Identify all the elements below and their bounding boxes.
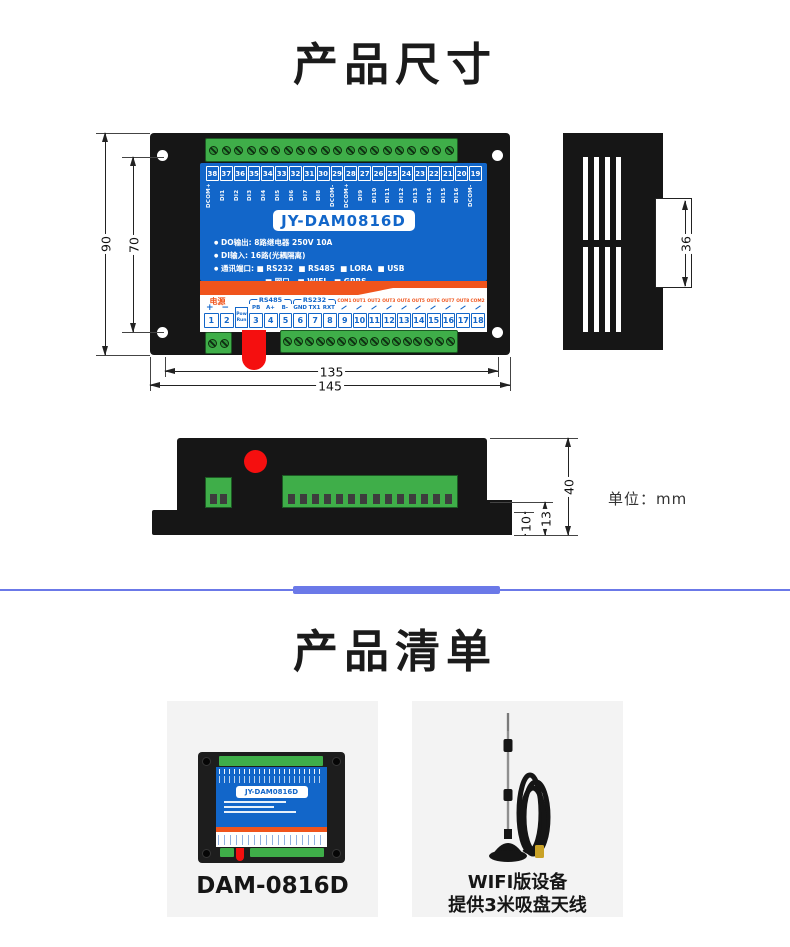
dim-value: 10 bbox=[518, 514, 533, 534]
terminal-number: 17 bbox=[456, 313, 470, 328]
terminal-number: 14 bbox=[412, 313, 426, 328]
terminal-number: 9 bbox=[338, 313, 352, 328]
relay-switch-icon bbox=[356, 305, 361, 309]
product-card-antenna: WIFI版设备 提供3米吸盘天线 bbox=[412, 701, 623, 917]
arrow-left-icon bbox=[149, 382, 160, 388]
rs232-bracket: RS232 bbox=[293, 299, 336, 304]
terminal-number: 12 bbox=[382, 313, 396, 328]
terminal-label: DCOM+ bbox=[206, 183, 220, 208]
terminal-screw bbox=[420, 146, 429, 155]
terminal-label: DI4 bbox=[261, 183, 275, 208]
dim-value: 70 bbox=[126, 235, 141, 255]
connector-pin bbox=[445, 494, 452, 504]
pin-label: PB bbox=[249, 305, 263, 311]
arrow-up-icon bbox=[130, 156, 136, 166]
section-divider-bar bbox=[293, 586, 500, 594]
terminal-screw bbox=[222, 146, 231, 155]
mini-label-row bbox=[219, 776, 324, 783]
vent-slots-top bbox=[583, 157, 621, 240]
output-label: OUT7 bbox=[441, 299, 456, 304]
arrow-down-icon bbox=[682, 277, 688, 287]
extension-line bbox=[165, 357, 166, 377]
terminal-number: 26 bbox=[372, 166, 385, 181]
vent-slot bbox=[583, 247, 588, 332]
connector-pin bbox=[348, 494, 355, 504]
terminal-label: DCOM- bbox=[468, 183, 482, 208]
terminal-number: 7 bbox=[308, 313, 322, 328]
side-view-drawing bbox=[563, 133, 663, 350]
terminal-screw bbox=[424, 337, 433, 346]
terminal-label: DI14 bbox=[427, 183, 441, 208]
terminal-screw bbox=[370, 146, 379, 155]
terminal-label: DI9 bbox=[358, 183, 372, 208]
vent-slot bbox=[594, 247, 599, 332]
terminal-screw bbox=[321, 146, 330, 155]
terminal-screw bbox=[392, 337, 401, 346]
rs485-bracket: RS485 bbox=[249, 299, 292, 304]
relay-symbols bbox=[337, 307, 485, 308]
arrow-right-icon bbox=[488, 368, 499, 374]
relay-switch-icon bbox=[342, 305, 347, 309]
rs485-pins: PBA+B- bbox=[249, 305, 292, 311]
mini-antenna-connector bbox=[236, 848, 244, 861]
terminal-screw bbox=[259, 146, 268, 155]
vent-slot bbox=[594, 157, 599, 240]
dim-profile-13: 13 bbox=[545, 502, 546, 535]
terminal-label: DI6 bbox=[289, 183, 303, 208]
terminal-screw bbox=[220, 339, 229, 348]
extension-line bbox=[122, 157, 164, 158]
terminal-number: 29 bbox=[331, 166, 344, 181]
extension-line bbox=[122, 332, 164, 333]
terminal-screw bbox=[283, 337, 292, 346]
dim-value: 36 bbox=[678, 234, 693, 254]
unit-note: 单位：mm bbox=[608, 488, 687, 509]
plus-sign: + bbox=[206, 304, 214, 312]
profile-power-connector bbox=[205, 477, 232, 508]
terminal-number: 11 bbox=[368, 313, 382, 328]
front-view-drawing: 3837363534333231302928272625242322212019… bbox=[150, 133, 510, 355]
arrow-down-icon bbox=[102, 346, 108, 356]
dim-profile-10: 10 bbox=[525, 512, 526, 535]
terminal-screw bbox=[234, 146, 243, 155]
screw-icon bbox=[202, 757, 211, 766]
terminal-number: 1 bbox=[204, 313, 219, 328]
device-photo: JY-DAM0816D bbox=[198, 752, 345, 863]
terminal-screw bbox=[432, 146, 441, 155]
terminal-screw bbox=[446, 337, 455, 346]
section-title-dimensions: 产品尺寸 bbox=[0, 28, 790, 93]
arrow-up-icon bbox=[682, 200, 688, 210]
dim-height-90: 90 bbox=[105, 133, 106, 355]
arrow-left-icon bbox=[164, 368, 175, 374]
pin-label: TX1 bbox=[307, 305, 321, 311]
connector-pin bbox=[409, 494, 416, 504]
terminal-number: 21 bbox=[441, 166, 454, 181]
vent-slot bbox=[605, 247, 610, 332]
dim-width-145: 145 bbox=[150, 385, 510, 386]
terminal-number: 2 bbox=[220, 313, 235, 328]
terminal-label: DI10 bbox=[372, 183, 386, 208]
mini-spec-line bbox=[224, 811, 296, 813]
terminal-number: 22 bbox=[428, 166, 441, 181]
terminal-screw bbox=[358, 146, 367, 155]
output-label: OUT4 bbox=[396, 299, 411, 304]
connector-pin bbox=[288, 494, 295, 504]
output-label: COM1 bbox=[337, 299, 352, 304]
mini-label-panel: JY-DAM0816D bbox=[216, 767, 327, 827]
terminal-screw bbox=[316, 337, 325, 346]
terminal-label: DI16 bbox=[454, 183, 468, 208]
connector-pin bbox=[324, 494, 331, 504]
minus-sign: − bbox=[221, 304, 229, 312]
connector-pin bbox=[385, 494, 392, 504]
mounting-hole bbox=[492, 150, 503, 161]
mounting-hole bbox=[157, 150, 168, 161]
io-terminals: 3456789101112131415161718 bbox=[249, 313, 485, 328]
di-terminal-labels: DCOM+DI1DI2DI3DI4DI5DI6DI7DI8DCOM-DCOM+D… bbox=[206, 183, 482, 208]
relay-switch-icon bbox=[401, 305, 406, 309]
terminal-number: 4 bbox=[264, 313, 278, 328]
product-card-dam0816d: JY-DAM0816D DAM-0816D bbox=[167, 701, 378, 917]
terminal-screw bbox=[435, 337, 444, 346]
device-label-panel: 3837363534333231302928272625242322212019… bbox=[200, 163, 487, 281]
terminal-number: 31 bbox=[303, 166, 316, 181]
terminal-number: 10 bbox=[353, 313, 367, 328]
antenna-connector bbox=[242, 330, 266, 370]
orange-stripe bbox=[200, 281, 487, 296]
antenna-connector-top bbox=[244, 450, 267, 473]
relay-switch-icon bbox=[445, 305, 450, 309]
terminal-number: 6 bbox=[293, 313, 307, 328]
terminal-number: 16 bbox=[442, 313, 456, 328]
spec-text: DO输出: 8路继电器 250V 10A bbox=[221, 237, 332, 248]
terminal-number: 8 bbox=[323, 313, 337, 328]
bullet-icon: ● bbox=[214, 266, 221, 272]
terminal-screw bbox=[308, 146, 317, 155]
terminal-label: DI11 bbox=[385, 183, 399, 208]
arrow-up-icon bbox=[565, 437, 571, 447]
terminal-label: DI5 bbox=[275, 183, 289, 208]
connector-pin bbox=[300, 494, 307, 504]
run-text: Run bbox=[237, 318, 247, 323]
arrow-down-icon bbox=[130, 323, 136, 333]
terminal-label: DI15 bbox=[441, 183, 455, 208]
connector-pin bbox=[312, 494, 319, 504]
product-spec-page: 产品尺寸 38373635343332313029282726252423222… bbox=[0, 0, 790, 947]
terminal-number: 38 bbox=[206, 166, 219, 181]
connector-pin bbox=[421, 494, 428, 504]
power-terminals: 12 bbox=[204, 313, 234, 328]
terminal-number: 3 bbox=[249, 313, 263, 328]
screw-icon bbox=[202, 849, 211, 858]
terminal-screw bbox=[296, 146, 305, 155]
output-label: OUT5 bbox=[411, 299, 426, 304]
terminal-number: 15 bbox=[427, 313, 441, 328]
mini-spec-line bbox=[224, 801, 286, 803]
terminal-label: DCOM- bbox=[330, 183, 344, 208]
terminal-number: 13 bbox=[397, 313, 411, 328]
vent-slots-bottom bbox=[583, 247, 621, 332]
mounting-hole bbox=[492, 327, 503, 338]
mini-power-block bbox=[220, 848, 234, 857]
bullet-icon: ● bbox=[214, 253, 221, 259]
spec-text: DI输入: 16路(光耦隔离) bbox=[221, 250, 305, 261]
dim-value: 135 bbox=[318, 364, 346, 379]
connector-pin bbox=[373, 494, 380, 504]
rs485-label: RS485 bbox=[257, 296, 284, 304]
mini-terminal-row bbox=[218, 835, 325, 845]
relay-switch-icon bbox=[416, 305, 421, 309]
terminal-screw bbox=[326, 337, 335, 346]
vent-slot bbox=[583, 157, 588, 240]
relay-switch-icon bbox=[371, 305, 376, 309]
output-label: COM2 bbox=[470, 299, 485, 304]
terminal-number: 35 bbox=[248, 166, 261, 181]
output-label: OUT8 bbox=[455, 299, 470, 304]
terminal-number: 37 bbox=[220, 166, 233, 181]
terminal-number: 25 bbox=[386, 166, 399, 181]
terminal-number: 24 bbox=[400, 166, 413, 181]
arrow-right-icon bbox=[500, 382, 511, 388]
product-subtitle: 提供3米吸盘天线 bbox=[412, 891, 623, 917]
spec-text: 通讯端口: ■ RS232 ■ RS485 ■ LORA ■ USB bbox=[221, 263, 404, 274]
terminal-number: 27 bbox=[358, 166, 371, 181]
di-terminal-numbers: 3837363534333231302928272625242322212019 bbox=[206, 166, 482, 181]
terminal-screw bbox=[247, 146, 256, 155]
terminal-screw bbox=[284, 146, 293, 155]
terminal-screw bbox=[346, 146, 355, 155]
terminal-screw bbox=[208, 339, 217, 348]
vent-slot bbox=[605, 157, 610, 240]
terminal-label: DI8 bbox=[316, 183, 330, 208]
pin-label: B- bbox=[278, 305, 292, 311]
product-name: DAM-0816D bbox=[167, 873, 378, 899]
terminal-screw bbox=[445, 146, 454, 155]
spec-line: ● DI输入: 16路(光耦隔离) bbox=[214, 249, 487, 262]
output-terminal-block bbox=[280, 330, 458, 353]
connector-pin bbox=[220, 494, 227, 504]
connector-pin bbox=[210, 494, 217, 504]
dim-value: 90 bbox=[98, 234, 113, 254]
terminal-label: DI1 bbox=[220, 183, 234, 208]
mini-output-block bbox=[250, 848, 324, 857]
relay-switch-icon bbox=[460, 305, 465, 309]
spec-line: ● 通讯端口: ■ RS232 ■ RS485 ■ LORA ■ USB bbox=[214, 262, 487, 275]
mini-model-badge: JY-DAM0816D bbox=[236, 786, 308, 798]
profile-io-connector bbox=[282, 475, 458, 508]
dim-value: 13 bbox=[538, 509, 553, 529]
terminal-screw bbox=[337, 337, 346, 346]
rs232-pins: GNDTX1RXT bbox=[293, 305, 336, 311]
terminal-number: 18 bbox=[471, 313, 485, 328]
mini-top-terminals bbox=[219, 756, 323, 766]
bottom-view-drawing bbox=[152, 438, 512, 535]
rs232-label: RS232 bbox=[301, 296, 328, 304]
pin-label: RXT bbox=[322, 305, 336, 311]
terminal-number: 28 bbox=[344, 166, 357, 181]
bullet-icon: ● bbox=[214, 240, 221, 246]
terminal-number: 32 bbox=[289, 166, 302, 181]
relay-output-labels: COM1OUT1OUT2OUT3OUT4OUT5OUT6OUT7OUT8COM2 bbox=[337, 299, 485, 304]
terminal-screw bbox=[395, 146, 404, 155]
terminal-label: DI2 bbox=[234, 183, 248, 208]
extension-line bbox=[498, 357, 499, 377]
relay-switch-icon bbox=[475, 305, 480, 309]
relay-switch-icon bbox=[430, 305, 435, 309]
terminal-number: 19 bbox=[469, 166, 482, 181]
terminal-screw bbox=[294, 337, 303, 346]
terminal-screw bbox=[403, 337, 412, 346]
bottom-terminal-strip: 电源 + − RS485 PBA+B- RS232 GNDTX1RXT COM1… bbox=[200, 296, 487, 332]
terminal-number: 36 bbox=[234, 166, 247, 181]
terminal-number: 20 bbox=[455, 166, 468, 181]
power-terminal-block bbox=[205, 332, 232, 354]
terminal-screw bbox=[407, 146, 416, 155]
terminal-screw bbox=[333, 146, 342, 155]
connector-pin bbox=[433, 494, 440, 504]
terminal-label: DCOM+ bbox=[344, 183, 358, 208]
pow-run-indicator: Pow Run bbox=[235, 307, 248, 328]
terminal-screw bbox=[383, 146, 392, 155]
output-label: OUT3 bbox=[381, 299, 396, 304]
terminal-number: 23 bbox=[414, 166, 427, 181]
pin-label: A+ bbox=[263, 305, 277, 311]
dim-profile-40: 40 bbox=[568, 438, 569, 535]
spec-line: ● DO输出: 8路继电器 250V 10A bbox=[214, 236, 487, 249]
terminal-number: 33 bbox=[275, 166, 288, 181]
terminal-label: DI3 bbox=[247, 183, 261, 208]
terminal-label: DI13 bbox=[413, 183, 427, 208]
connector-pin bbox=[336, 494, 343, 504]
vent-slot bbox=[616, 157, 621, 240]
output-label: OUT1 bbox=[352, 299, 367, 304]
terminal-screw bbox=[413, 337, 422, 346]
arrow-down-icon bbox=[565, 526, 571, 536]
connector-pin bbox=[360, 494, 367, 504]
section-title-list: 产品清单 bbox=[0, 615, 790, 680]
profile-base bbox=[152, 510, 512, 535]
terminal-screw bbox=[381, 337, 390, 346]
mini-number-row bbox=[219, 769, 324, 774]
dim-width-135: 135 bbox=[165, 371, 498, 372]
power-polarity: + − bbox=[202, 304, 233, 312]
terminal-label: DI12 bbox=[399, 183, 413, 208]
dim-rail-36: 36 bbox=[685, 201, 686, 286]
pin-label: GND bbox=[293, 305, 307, 311]
terminal-number: 34 bbox=[261, 166, 274, 181]
dim-height-70: 70 bbox=[133, 157, 134, 332]
screw-icon bbox=[332, 849, 341, 858]
arrow-up-icon bbox=[102, 132, 108, 142]
terminal-screw bbox=[209, 146, 218, 155]
relay-switch-icon bbox=[386, 305, 391, 309]
terminal-screw bbox=[370, 337, 379, 346]
output-label: OUT2 bbox=[367, 299, 382, 304]
terminal-label: DI7 bbox=[303, 183, 317, 208]
mini-spec-line bbox=[224, 806, 274, 808]
model-name-badge: JY-DAM0816D bbox=[273, 210, 415, 231]
output-label: OUT6 bbox=[426, 299, 441, 304]
vent-slot bbox=[616, 247, 621, 332]
terminal-screw bbox=[271, 146, 280, 155]
screw-icon bbox=[332, 757, 341, 766]
terminal-screw bbox=[359, 337, 368, 346]
terminal-screw bbox=[348, 337, 357, 346]
bottom-terminal-numbers: 12 Pow Run 3456789101112131415161718 bbox=[204, 313, 485, 328]
terminal-screw bbox=[305, 337, 314, 346]
connector-pin bbox=[397, 494, 404, 504]
top-terminal-block bbox=[205, 138, 458, 162]
mini-bottom-strip bbox=[216, 832, 327, 847]
terminal-number: 5 bbox=[279, 313, 293, 328]
dim-value: 40 bbox=[561, 477, 576, 497]
terminal-number: 30 bbox=[317, 166, 330, 181]
dim-value: 145 bbox=[316, 378, 344, 393]
